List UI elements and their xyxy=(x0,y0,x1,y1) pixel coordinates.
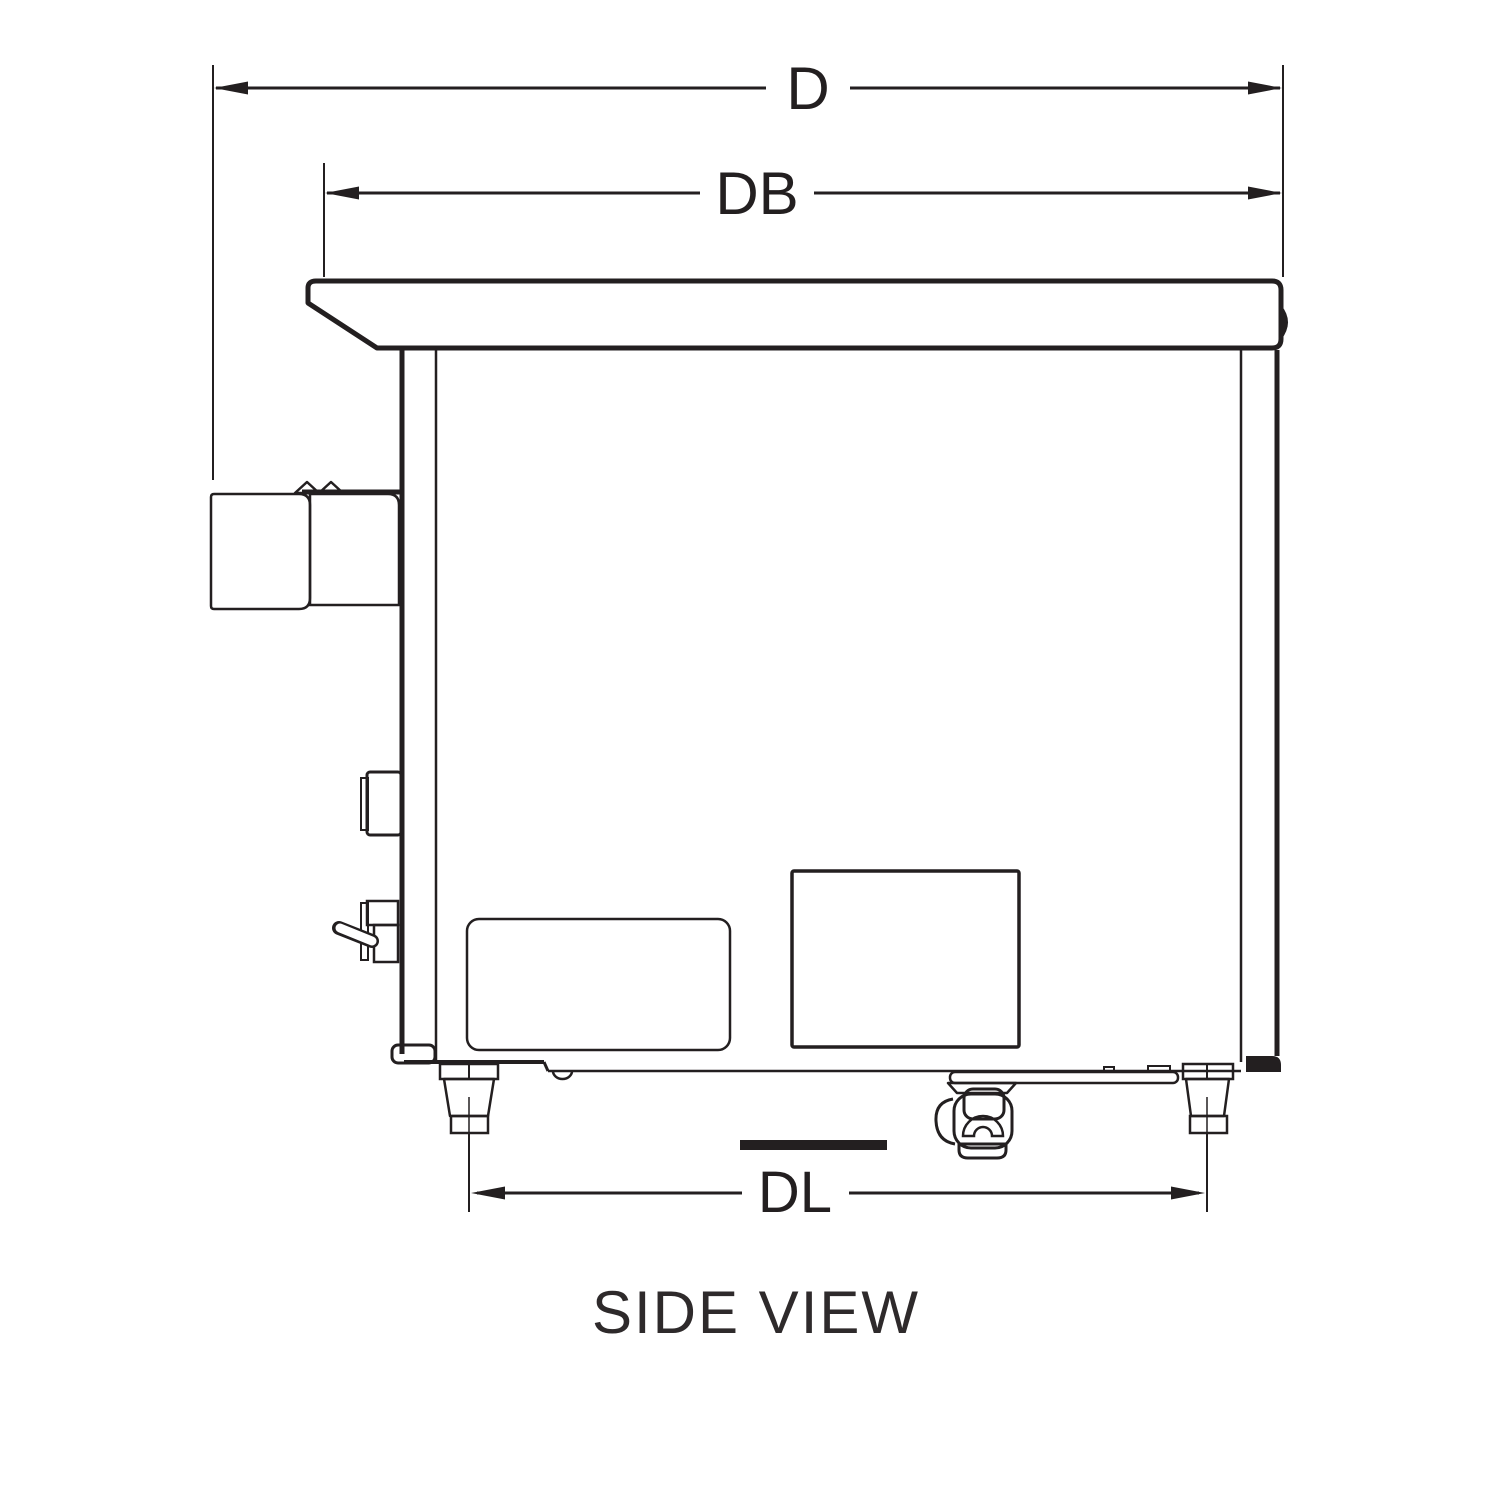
dimension-dl: DL xyxy=(469,1133,1207,1225)
base-bar-tab-left xyxy=(1104,1067,1114,1072)
lid-outline xyxy=(308,281,1281,348)
base-bar xyxy=(950,1072,1178,1083)
arrow-right-icon xyxy=(1248,82,1282,95)
drain-spout-inner-box xyxy=(310,494,399,605)
side-view-diagram: D DB DL SIDE VIEW xyxy=(0,0,1500,1500)
dimension-db-label: DB xyxy=(715,160,798,227)
connector-block xyxy=(367,772,401,835)
caster-wheel xyxy=(936,1083,1016,1158)
drain-spout xyxy=(211,482,401,609)
base-bar-tab-right xyxy=(1148,1066,1170,1072)
lower-left-panel xyxy=(467,919,730,1050)
toggle-switch xyxy=(339,901,398,962)
right-leg-foot xyxy=(1190,1116,1227,1133)
lower-right-panel xyxy=(792,871,1019,1047)
appliance-body xyxy=(211,281,1288,1158)
view-caption: SIDE VIEW xyxy=(592,1279,920,1346)
side-view-diagram-page: D DB DL SIDE VIEW xyxy=(0,0,1500,1500)
lid-hinge-icon xyxy=(1281,305,1288,340)
drain-spout-outer-box xyxy=(211,494,310,609)
left-leg xyxy=(440,1064,498,1133)
switch-upper-block xyxy=(367,901,398,925)
bottom-edge-step xyxy=(544,1062,548,1071)
base-frame xyxy=(950,1066,1178,1083)
right-leg xyxy=(1183,1064,1233,1133)
dimension-dl-label: DL xyxy=(758,1160,832,1225)
dimension-d: D xyxy=(213,55,1283,480)
wall-right-foot xyxy=(1246,1056,1281,1072)
dimension-d-label: D xyxy=(786,55,829,122)
arrow-left-icon xyxy=(471,1187,505,1200)
side-connector xyxy=(361,772,401,835)
arrow-right-icon xyxy=(1171,1187,1205,1200)
arrow-right-icon xyxy=(1248,187,1282,200)
arrow-left-icon xyxy=(214,82,248,95)
arrow-left-icon xyxy=(325,187,359,200)
caster-swivel-bracket xyxy=(936,1099,955,1144)
dimension-dl-overline xyxy=(740,1140,887,1150)
dimension-db: DB xyxy=(324,160,1282,277)
